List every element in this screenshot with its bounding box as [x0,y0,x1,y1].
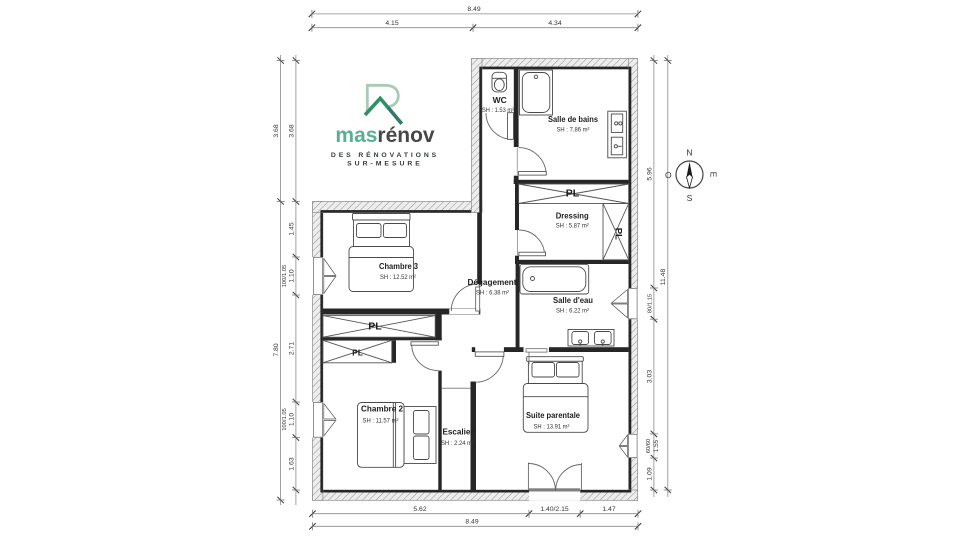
svg-text:4.34: 4.34 [548,20,561,27]
svg-text:1.10: 1.10 [288,269,295,282]
svg-text:Escalier: Escalier [443,428,474,437]
svg-text:Salle de bains: Salle de bains [548,115,599,124]
svg-text:1.63: 1.63 [288,457,295,470]
svg-text:60/60: 60/60 [646,439,652,454]
svg-text:1.10: 1.10 [288,413,295,426]
svg-text:PL: PL [613,228,624,240]
svg-text:Dégagement: Dégagement [468,278,517,287]
svg-text:4.15: 4.15 [385,20,398,27]
svg-text:2.71: 2.71 [288,342,295,355]
svg-text:80/1.15: 80/1.15 [647,294,653,313]
svg-text:Chambre 2: Chambre 2 [361,405,404,414]
svg-text:5.96: 5.96 [646,167,653,180]
svg-text:Suite parentale: Suite parentale [526,411,581,420]
svg-text:PL: PL [566,188,580,200]
svg-text:1.45: 1.45 [288,222,295,235]
svg-text:SH : 13.91 m²: SH : 13.91 m² [534,424,570,431]
svg-text:masrénov: masrénov [335,124,435,147]
svg-text:100/1.05: 100/1.05 [282,265,288,288]
svg-text:3.68: 3.68 [273,124,280,137]
svg-text:1.55: 1.55 [653,439,660,452]
svg-text:Salle d'eau: Salle d'eau [553,296,593,305]
svg-text:1.40/2.15: 1.40/2.15 [540,506,569,513]
svg-text:1.09: 1.09 [646,467,653,480]
svg-text:7.80: 7.80 [273,343,280,356]
svg-text:SH : 7.86 m²: SH : 7.86 m² [557,127,590,134]
svg-text:5.62: 5.62 [413,506,426,513]
svg-text:1.47: 1.47 [602,506,615,513]
svg-text:DES RÉNOVATIONS: DES RÉNOVATIONS [331,150,439,159]
svg-text:SH : 5.87 m²: SH : 5.87 m² [556,223,589,230]
svg-text:SH : 12.52 m²: SH : 12.52 m² [380,274,416,281]
svg-text:SH : 6.38 m²: SH : 6.38 m² [476,290,509,297]
svg-text:E: E [709,172,719,178]
svg-text:PL: PL [368,321,382,333]
svg-text:100/1.05: 100/1.05 [282,408,288,431]
svg-text:SH : 11.57 m²: SH : 11.57 m² [363,418,399,425]
svg-text:SUR-MESURE: SUR-MESURE [347,161,423,168]
svg-text:WC: WC [493,95,507,105]
svg-text:3.68: 3.68 [288,124,295,137]
svg-text:O: O [665,170,672,180]
svg-text:3.03: 3.03 [646,370,653,383]
svg-text:SH : 6.22 m²: SH : 6.22 m² [556,308,589,315]
svg-text:SH : 1.53 m²: SH : 1.53 m² [482,107,514,114]
svg-text:11.48: 11.48 [660,269,667,286]
svg-text:Chambre 3: Chambre 3 [379,262,419,271]
svg-text:N: N [686,148,692,158]
svg-text:S: S [687,193,693,203]
svg-text:Dressing: Dressing [556,212,589,221]
svg-text:8.49: 8.49 [465,519,478,526]
svg-text:8.49: 8.49 [467,6,480,13]
svg-text:SH : 2.24 m²: SH : 2.24 m² [441,440,474,447]
svg-text:PL: PL [352,348,363,358]
